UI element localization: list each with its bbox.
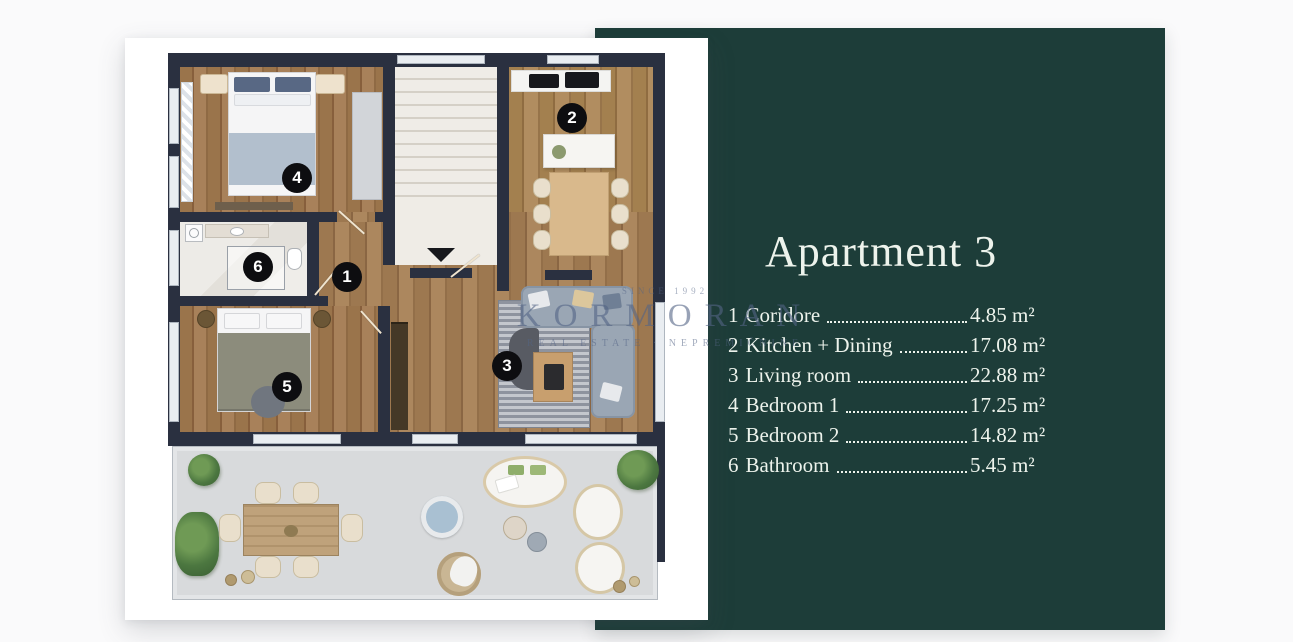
terrace-wicker-chair [437,552,481,596]
room-name: Bedroom 1 [746,393,840,418]
wall-stair-right [497,53,509,291]
presentation-slide: { "panel": { "title": "Apartment 3", "ro… [0,0,1293,642]
room-area: 14.82 m² [970,423,1048,448]
side-table [313,310,331,328]
room-row-corridor: 1 Coridore 4.85 m² [728,298,1048,328]
sofa-top-section [521,286,633,328]
wardrobe [352,92,382,200]
washing-machine [185,224,203,242]
badge-living: 3 [492,351,522,381]
room-area: 17.08 m² [970,333,1048,358]
nightstand [200,74,228,94]
wall-living-stub-right [545,270,592,280]
wall-stair-left [383,53,395,265]
cooktop [529,74,559,88]
room-number: 2 [728,333,739,358]
toilet [287,248,302,270]
terrace-plant [175,512,219,576]
room-list: 1 Coridore 4.85 m² 2 Kitchen + Dining 17… [728,298,1048,478]
terrace-chair [293,556,319,578]
hall-cabinet [391,322,408,430]
dining-chair [611,230,629,250]
terrace-chair [293,482,319,504]
room-area: 4.85 m² [970,303,1048,328]
glass-door-living [525,434,637,444]
terrace-chair [219,514,241,542]
room-row-living-room: 3 Living room 22.88 m² [728,358,1048,388]
terrace-chair [255,556,281,578]
badge-bedroom1: 4 [282,163,312,193]
nightstand [315,74,345,94]
tv-console [215,202,293,210]
badge-bathroom: 6 [243,252,273,282]
dining-chair [533,230,551,250]
room-name: Bathroom [746,453,830,478]
floor-plan-card: 1 2 3 4 5 6 [125,38,708,620]
window-stairwell-top [397,55,485,64]
dot-leader [858,381,967,383]
terrace-pot [241,570,255,584]
stair-steps [395,67,497,197]
window-living-right [655,302,665,422]
dining-chair [533,204,551,224]
badge-number: 2 [567,108,576,128]
apartment-title: Apartment 3 [765,226,997,277]
sofa-right-section [591,324,635,418]
room-row-bedroom-2: 5 Bedroom 2 14.82 m² [728,418,1048,448]
terrace-pot [629,576,640,587]
kitchen-appliance [565,72,599,88]
dot-leader [846,441,967,443]
terrace-side-table [503,516,527,540]
floor-plan: 1 2 3 4 5 6 [165,52,668,604]
room-number: 6 [728,453,739,478]
terrace-pot [613,580,626,593]
kitchen-island [543,134,615,168]
badge-kitchen: 2 [557,103,587,133]
terrace-chair [255,482,281,504]
room-row-kitchen-dining: 2 Kitchen + Dining 17.08 m² [728,328,1048,358]
terrace-daybed [483,456,567,508]
window-bedroom1-b [169,156,179,208]
dot-leader [827,321,967,323]
wall-terrace-right [657,446,665,562]
terrace-chair [341,514,363,542]
badge-number: 4 [292,168,301,188]
dining-chair [611,178,629,198]
room-number: 5 [728,423,739,448]
room-number: 3 [728,363,739,388]
room-number: 4 [728,393,739,418]
badge-bedroom2: 5 [272,372,302,402]
room-number: 1 [728,303,739,328]
bathroom-vanity [205,224,269,238]
coffee-table [533,352,573,402]
window-kitchen-top [547,55,599,64]
dining-chair [611,204,629,224]
badge-number: 1 [342,267,351,287]
stair-direction-arrow [427,248,455,262]
badge-number: 5 [282,377,291,397]
terrace-dining-table [243,504,339,556]
dot-leader [900,351,967,353]
room-name: Kitchen + Dining [746,333,893,358]
side-table [197,310,215,328]
wall-bedroom2-right [378,306,390,432]
room-name: Living room [746,363,852,388]
room-area: 22.88 m² [970,363,1048,388]
glass-door-corridor [412,434,458,444]
room-name: Coridore [746,303,821,328]
glass-door-bedroom2 [253,434,341,444]
wall-bathroom-bottom [168,296,328,306]
terrace-plant [188,454,220,486]
room-row-bathroom: 6 Bathroom 5.45 m² [728,448,1048,478]
window-bathroom [169,230,179,286]
badge-number: 6 [253,257,262,277]
window-bedroom2 [169,322,179,422]
terrace-pouf [421,496,463,538]
badge-corridor: 1 [332,262,362,292]
terrace-lounge-chair [573,484,623,540]
room-area: 17.25 m² [970,393,1048,418]
room-area: 5.45 m² [970,453,1048,478]
terrace-pot [225,574,237,586]
window-bedroom1-a [169,88,179,144]
dot-leader [837,471,968,473]
terrace-plant [617,450,659,490]
dot-leader [846,411,967,413]
terrace-side-table [527,532,547,552]
badge-number: 3 [502,356,511,376]
room-name: Bedroom 2 [746,423,840,448]
wall-living-stub-left [410,268,472,278]
curtain [181,82,193,202]
room-row-bedroom-1: 4 Bedroom 1 17.25 m² [728,388,1048,418]
dining-chair [533,178,551,198]
dining-table [549,172,609,256]
